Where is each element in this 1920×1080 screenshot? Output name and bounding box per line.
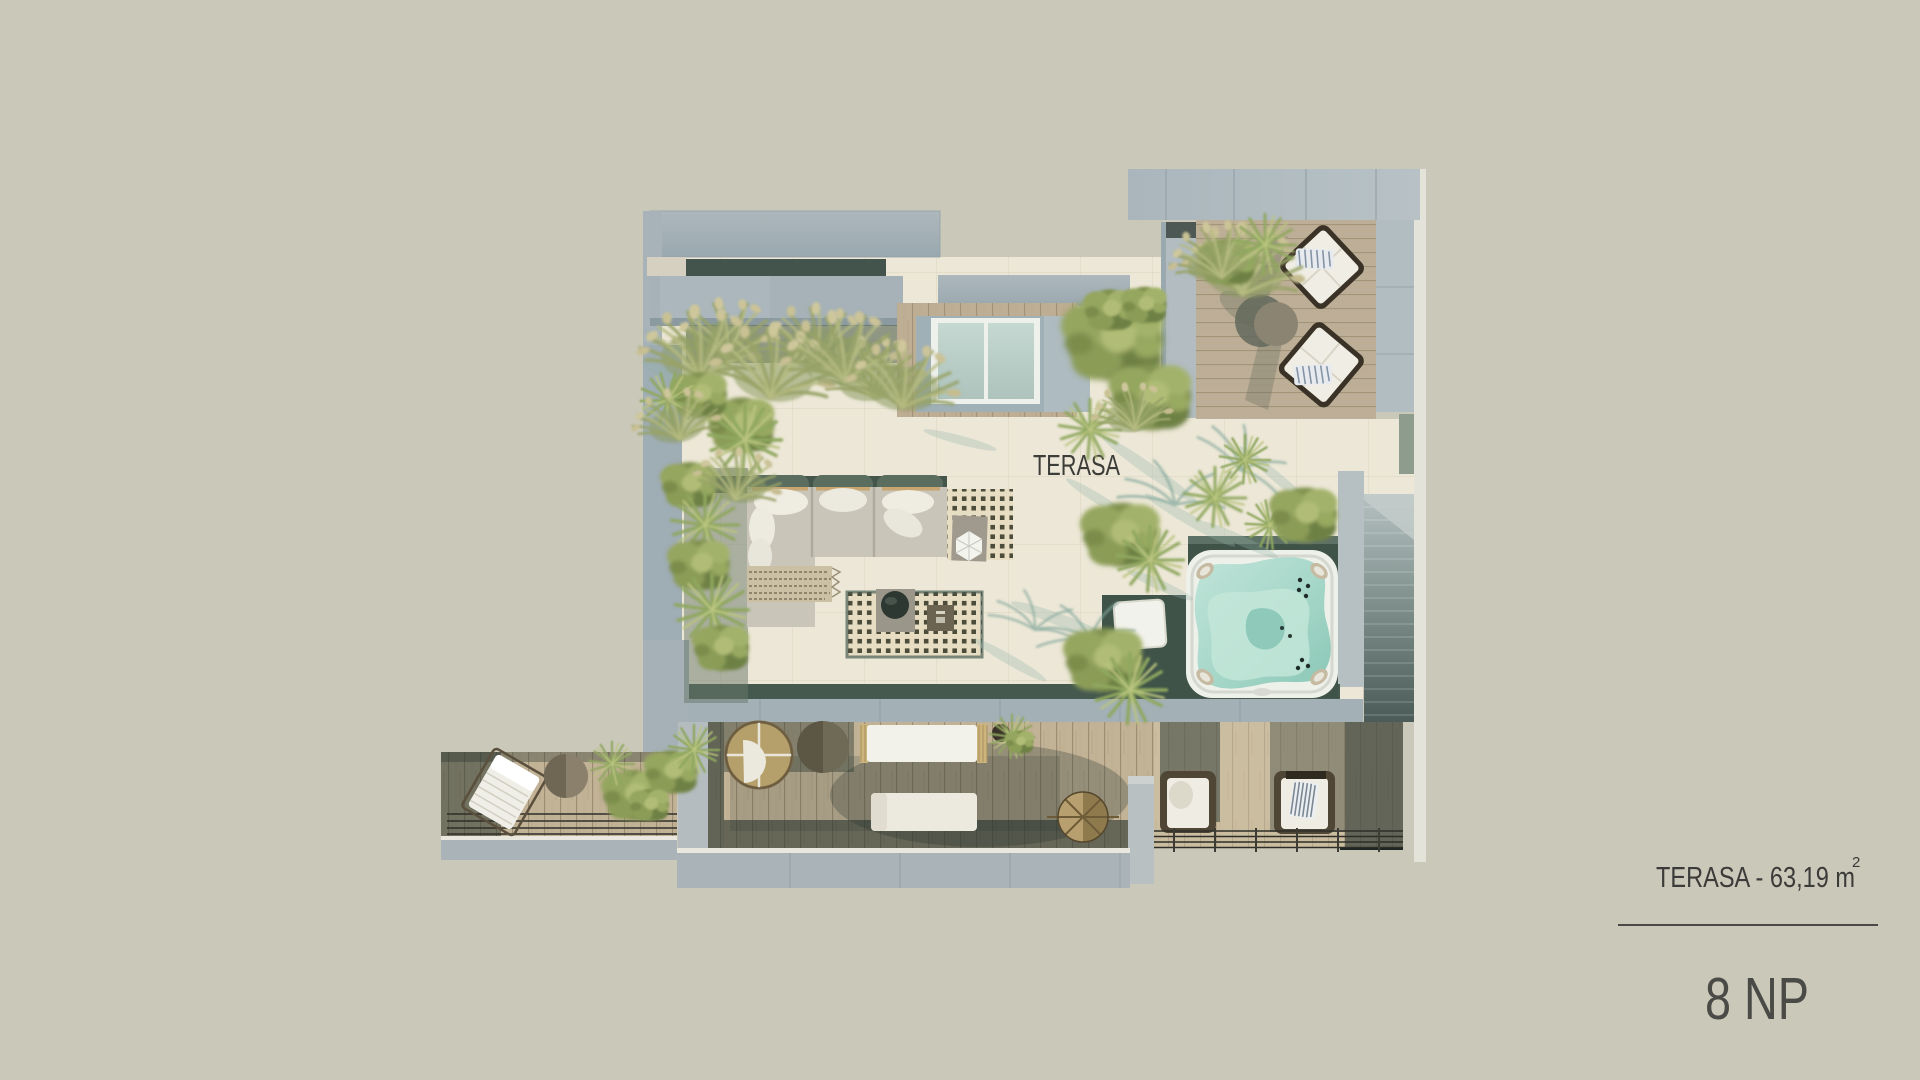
- svg-text:8 NP: 8 NP: [1705, 966, 1809, 1032]
- svg-text:2: 2: [1852, 854, 1860, 871]
- svg-text:TERASA - 63,19 m: TERASA - 63,19 m: [1656, 862, 1855, 894]
- svg-text:TERASA: TERASA: [1033, 450, 1120, 482]
